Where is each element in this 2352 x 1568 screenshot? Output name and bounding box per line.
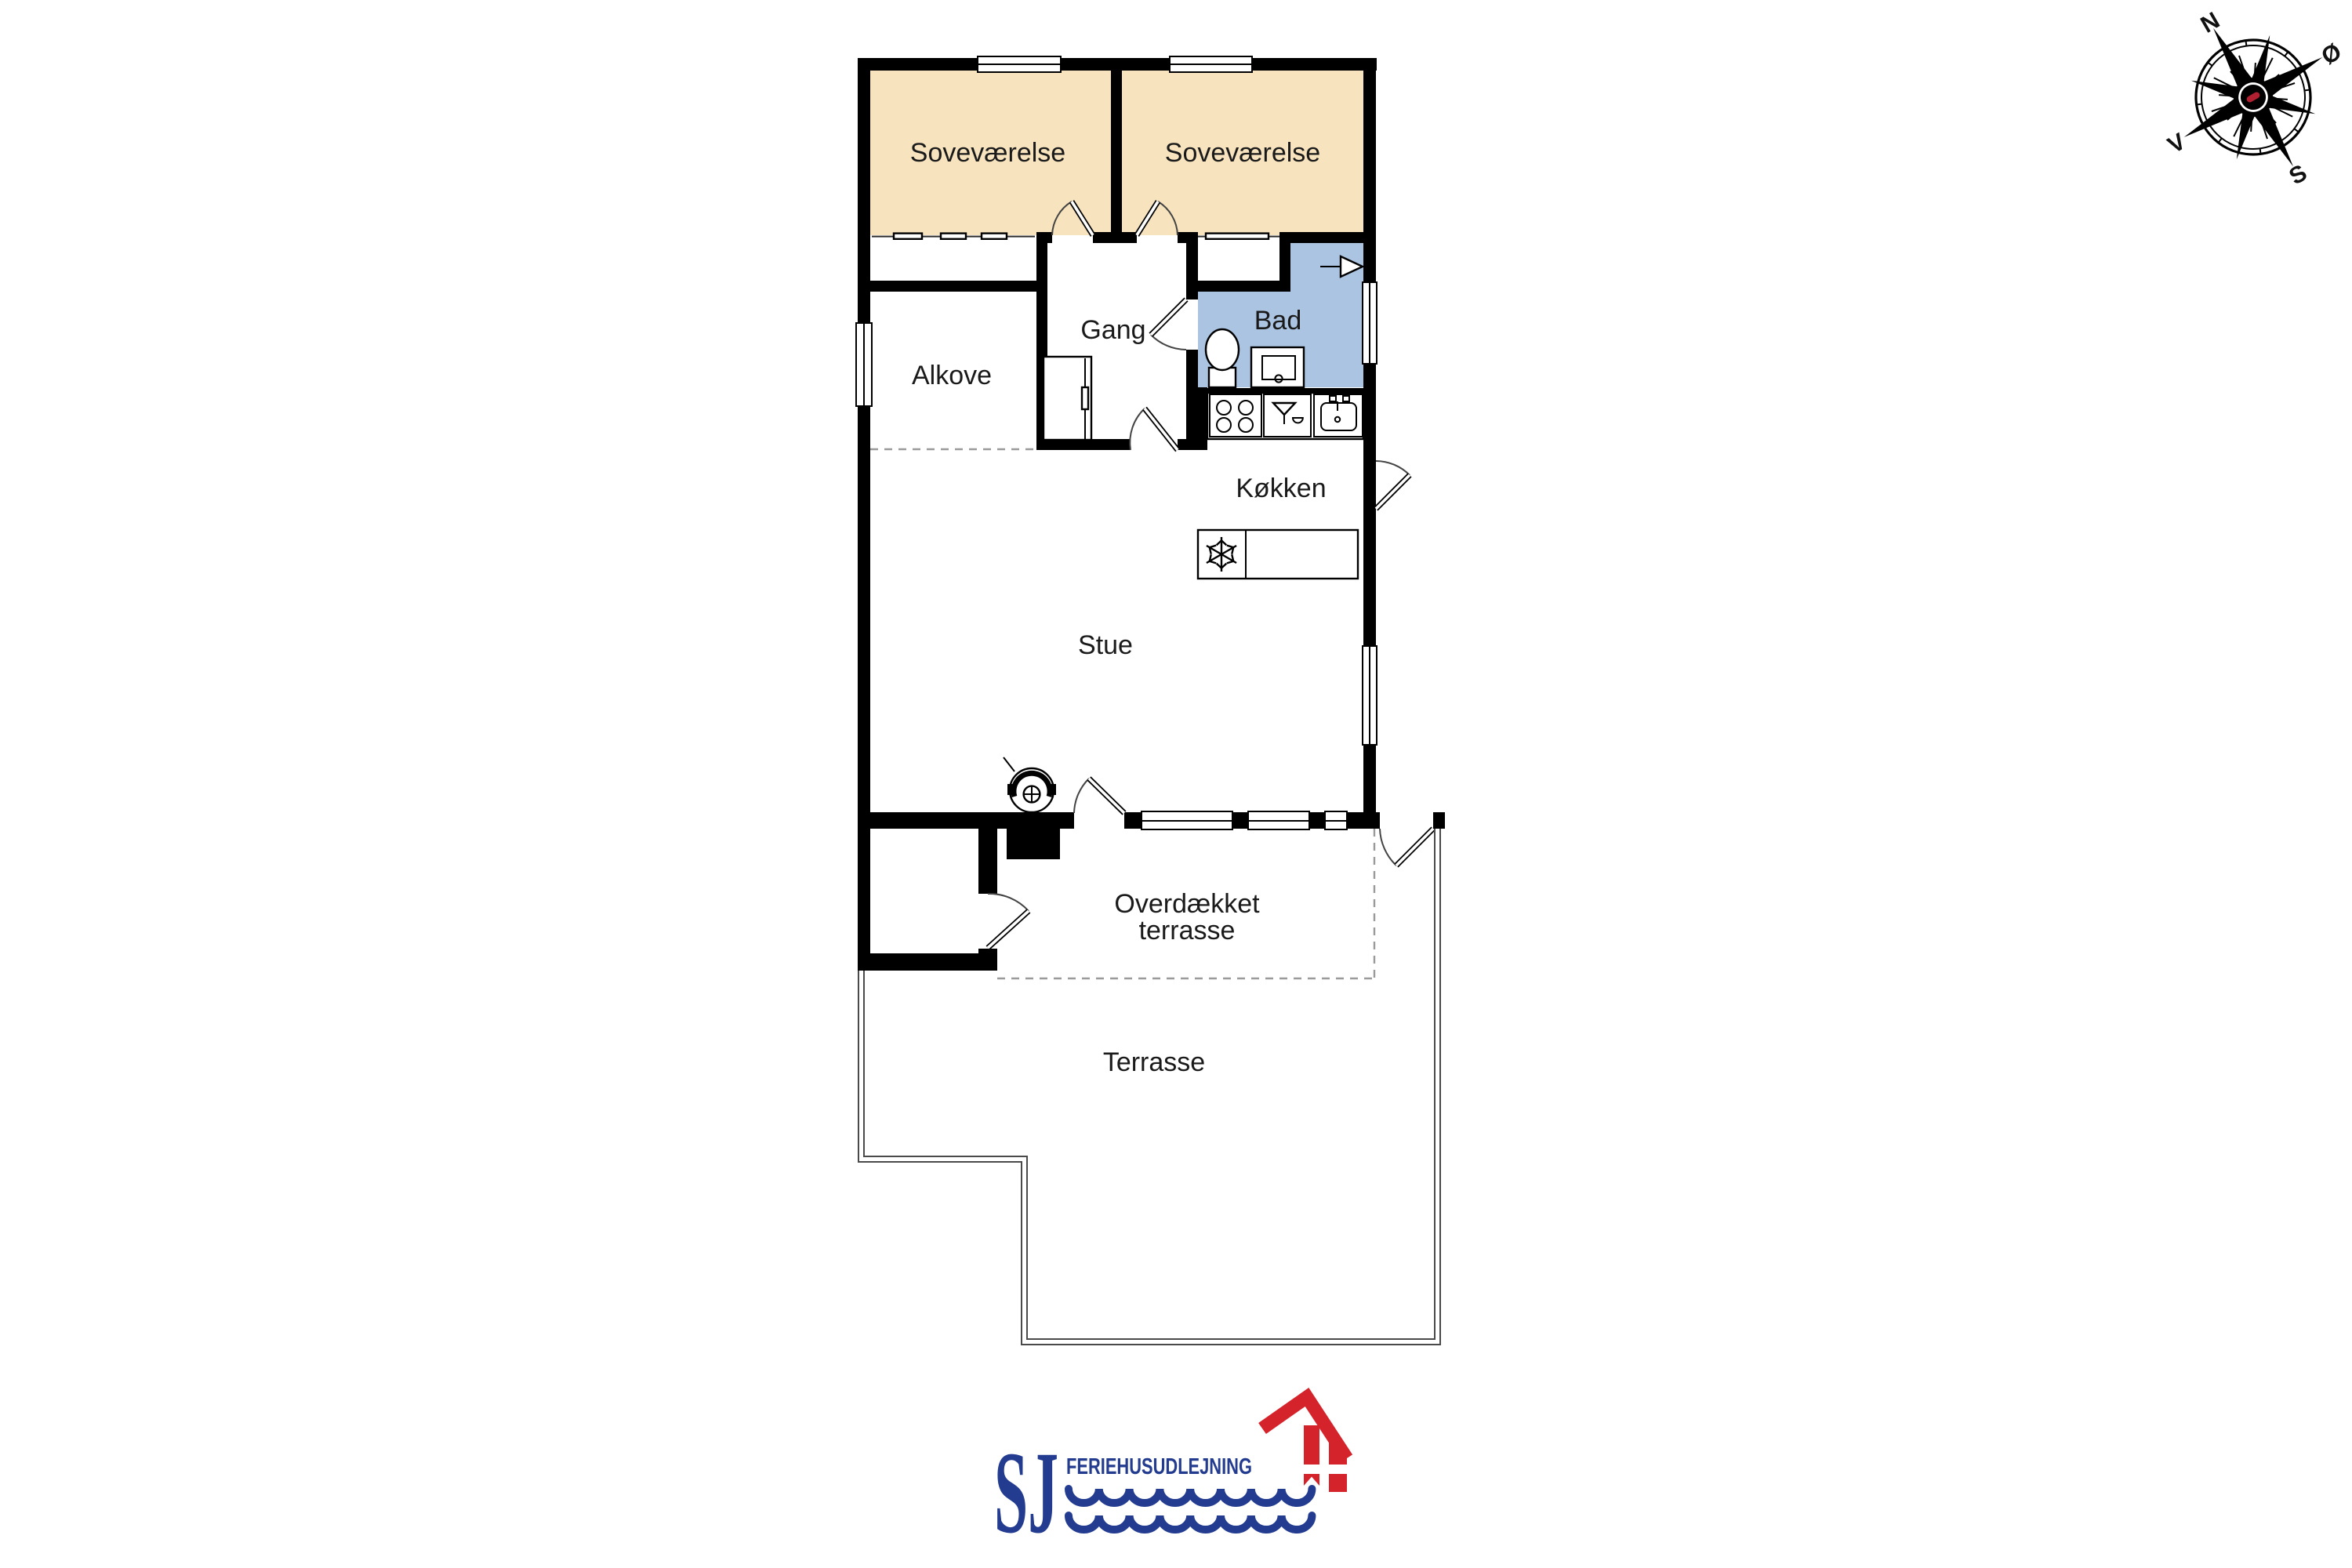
door-annex <box>988 894 1029 948</box>
room-labels: Soveværelse Soveværelse Gang Bad Alkove … <box>910 138 1327 1077</box>
logo-house-icon <box>1262 1397 1347 1492</box>
toilet-icon <box>1206 329 1239 387</box>
window-bedroom-1 <box>978 56 1061 72</box>
kitchen-counter <box>1207 393 1363 439</box>
door-hallway-living-room <box>1130 408 1178 450</box>
company-logo: SJ FERIEHUSUDLEJNING <box>994 1397 1347 1558</box>
room-label-bedroom-1: Soveværelse <box>910 138 1065 168</box>
closet-hallway <box>1044 357 1091 440</box>
room-label-hallway: Gang <box>1080 315 1145 345</box>
chimney-block <box>1007 829 1060 859</box>
window-living-room-east <box>1363 646 1377 745</box>
wood-stove-icon <box>1004 757 1056 816</box>
logo-waves-icon <box>1069 1489 1312 1530</box>
compass-label-north: N <box>2197 7 2224 38</box>
window-bathroom-east <box>1363 282 1377 364</box>
window-alcove <box>856 323 872 406</box>
window-living-room-south-1 <box>1142 811 1232 829</box>
closet-front-bathroom <box>1198 234 1279 239</box>
door-terrace-gate <box>1380 829 1433 866</box>
room-label-bedroom-2: Soveværelse <box>1165 138 1320 168</box>
room-label-bathroom: Bad <box>1254 306 1302 336</box>
room-label-covered-terrace-line1: Overdækket <box>1114 889 1260 919</box>
room-label-kitchen: Køkken <box>1236 474 1326 503</box>
window-living-room-south-3 <box>1325 811 1347 829</box>
room-label-living-room: Stue <box>1078 630 1133 660</box>
door-kitchen-entrance <box>1376 461 1410 509</box>
door-bathroom <box>1151 299 1186 350</box>
room-label-alcove: Alkove <box>912 361 992 390</box>
compass-rose-icon: N Ø S V <box>2120 0 2352 234</box>
logo-initials: SJ <box>994 1428 1058 1558</box>
compass-label-south: S <box>2285 160 2311 191</box>
compass-label-west: V <box>2164 129 2190 159</box>
door-living-room-terrace <box>1074 779 1124 813</box>
window-bedroom-2 <box>1170 56 1252 72</box>
fridge-island <box>1198 530 1358 579</box>
compass-label-east: Ø <box>2318 38 2347 70</box>
logo-company-name: FERIEHUSUDLEJNING <box>1066 1454 1252 1479</box>
shower-icon <box>1251 347 1304 387</box>
room-label-covered-terrace-line2: terrasse <box>1139 916 1236 946</box>
floorplan-drawing: Soveværelse Soveværelse Gang Bad Alkove … <box>0 0 2352 1568</box>
room-label-terrace: Terrasse <box>1103 1047 1205 1077</box>
floorplan-page: Soveværelse Soveværelse Gang Bad Alkove … <box>0 0 2352 1568</box>
window-living-room-south-2 <box>1248 811 1309 829</box>
